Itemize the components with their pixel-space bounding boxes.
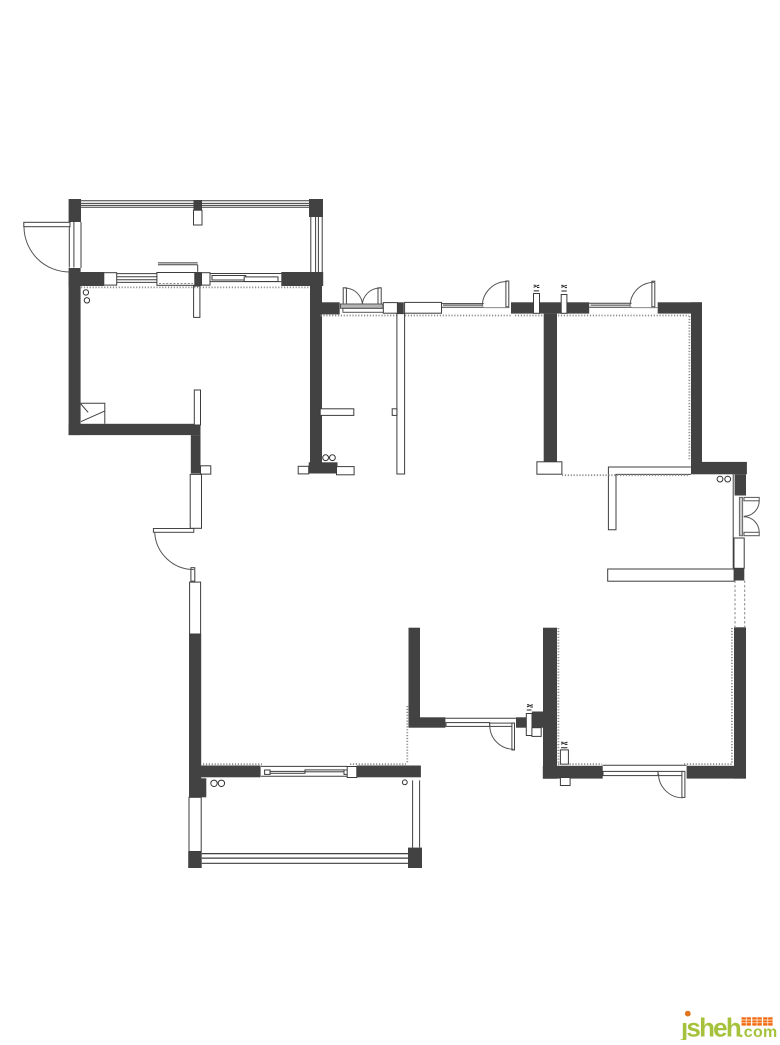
svg-text:ȷsheh: ȷsheh bbox=[680, 1013, 741, 1041]
svg-text:.com: .com bbox=[739, 1024, 778, 1040]
